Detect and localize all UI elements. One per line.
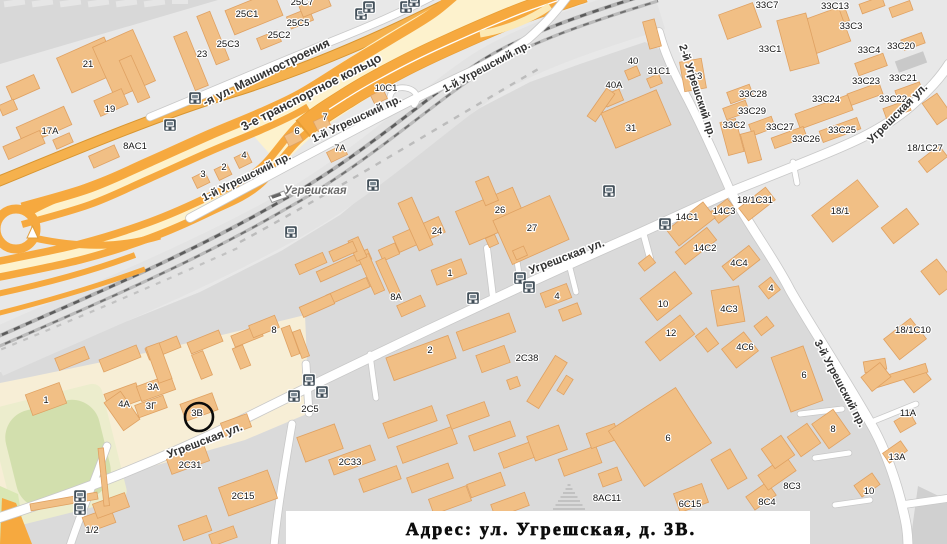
svg-text:14C3: 14C3 bbox=[713, 206, 736, 217]
svg-text:18/1: 18/1 bbox=[831, 206, 850, 217]
svg-text:33C3: 33C3 bbox=[840, 21, 863, 32]
svg-text:2C31: 2C31 bbox=[179, 460, 202, 471]
svg-text:8C4: 8C4 bbox=[758, 497, 775, 508]
svg-text:40A: 40A bbox=[606, 80, 624, 91]
svg-text:4C4: 4C4 bbox=[730, 258, 747, 269]
svg-text:3A: 3A bbox=[147, 382, 159, 393]
svg-text:6: 6 bbox=[801, 370, 806, 381]
svg-text:40: 40 bbox=[628, 56, 639, 67]
svg-text:Адрес: ул. Угрешская, д. 3В.: Адрес: ул. Угрешская, д. 3В. bbox=[406, 519, 697, 539]
svg-text:10: 10 bbox=[658, 299, 669, 310]
svg-text:25C1: 25C1 bbox=[236, 9, 259, 20]
svg-text:26: 26 bbox=[495, 205, 506, 216]
svg-text:33C2: 33C2 bbox=[723, 120, 746, 131]
svg-text:6C15: 6C15 bbox=[679, 499, 702, 510]
svg-text:7: 7 bbox=[322, 112, 327, 123]
svg-text:31: 31 bbox=[626, 123, 637, 134]
svg-text:10C1: 10C1 bbox=[375, 83, 398, 94]
svg-text:33C1: 33C1 bbox=[759, 44, 782, 55]
svg-text:1/2: 1/2 bbox=[85, 525, 98, 536]
svg-text:Угрешская: Угрешская bbox=[284, 185, 347, 197]
svg-text:33C24: 33C24 bbox=[812, 94, 840, 105]
svg-text:27: 27 bbox=[527, 223, 538, 234]
svg-text:33C20: 33C20 bbox=[887, 41, 915, 52]
svg-text:4: 4 bbox=[768, 283, 773, 294]
svg-text:25C5: 25C5 bbox=[287, 18, 310, 29]
svg-text:4C3: 4C3 bbox=[720, 304, 737, 315]
svg-text:19: 19 bbox=[105, 104, 116, 115]
svg-text:17A: 17A bbox=[42, 126, 60, 137]
svg-text:18/1C27: 18/1C27 bbox=[907, 143, 943, 154]
svg-text:4C6: 4C6 bbox=[736, 342, 753, 353]
svg-text:11A: 11A bbox=[900, 408, 917, 419]
svg-text:33C4: 33C4 bbox=[858, 45, 881, 56]
svg-text:2: 2 bbox=[221, 162, 226, 173]
svg-text:2C33: 2C33 bbox=[339, 457, 362, 468]
svg-text:7A: 7A bbox=[334, 143, 346, 154]
svg-text:21: 21 bbox=[83, 59, 94, 70]
svg-text:33C13: 33C13 bbox=[821, 1, 849, 12]
svg-text:33C25: 33C25 bbox=[828, 125, 856, 136]
svg-text:33C28: 33C28 bbox=[739, 89, 767, 100]
svg-text:6: 6 bbox=[294, 126, 299, 137]
svg-text:10: 10 bbox=[864, 486, 875, 497]
svg-text:3Г: 3Г bbox=[146, 401, 156, 412]
svg-text:8AC1: 8AC1 bbox=[123, 141, 147, 152]
svg-text:6: 6 bbox=[665, 433, 670, 444]
svg-text:4: 4 bbox=[241, 150, 246, 161]
svg-text:1: 1 bbox=[447, 268, 452, 279]
svg-text:25C7: 25C7 bbox=[291, 0, 314, 8]
svg-text:33C23: 33C23 bbox=[852, 76, 880, 87]
svg-text:18/1C31: 18/1C31 bbox=[737, 195, 773, 206]
svg-text:2: 2 bbox=[427, 345, 432, 356]
svg-text:2C5: 2C5 bbox=[301, 404, 318, 415]
svg-text:4: 4 bbox=[554, 291, 559, 302]
svg-text:25C2: 25C2 bbox=[268, 30, 291, 41]
svg-text:8: 8 bbox=[830, 424, 835, 435]
svg-text:14C1: 14C1 bbox=[676, 212, 699, 223]
svg-text:1: 1 bbox=[43, 395, 48, 406]
svg-text:4A: 4A bbox=[118, 399, 130, 410]
svg-text:33C21: 33C21 bbox=[889, 73, 917, 84]
svg-text:23: 23 bbox=[197, 49, 208, 60]
svg-text:33C26: 33C26 bbox=[792, 134, 820, 145]
svg-text:12: 12 bbox=[666, 328, 677, 339]
svg-text:33C27: 33C27 bbox=[766, 122, 794, 133]
svg-text:3В: 3В bbox=[191, 408, 203, 419]
svg-text:8AC11: 8AC11 bbox=[593, 493, 621, 504]
svg-text:14C2: 14C2 bbox=[694, 243, 717, 254]
svg-text:8C3: 8C3 bbox=[783, 481, 800, 492]
svg-text:8A: 8A bbox=[390, 292, 402, 303]
svg-text:18/1C10: 18/1C10 bbox=[895, 325, 931, 336]
svg-text:33C7: 33C7 bbox=[756, 0, 779, 11]
svg-text:33C29: 33C29 bbox=[738, 106, 766, 117]
svg-text:8: 8 bbox=[271, 325, 276, 336]
svg-text:24: 24 bbox=[432, 226, 443, 237]
svg-text:31C1: 31C1 bbox=[648, 66, 671, 77]
svg-text:25C3: 25C3 bbox=[217, 39, 240, 50]
svg-text:13A: 13A bbox=[889, 452, 907, 463]
svg-text:2C38: 2C38 bbox=[516, 353, 539, 364]
svg-text:2C15: 2C15 bbox=[232, 491, 255, 502]
svg-text:3: 3 bbox=[200, 169, 205, 180]
